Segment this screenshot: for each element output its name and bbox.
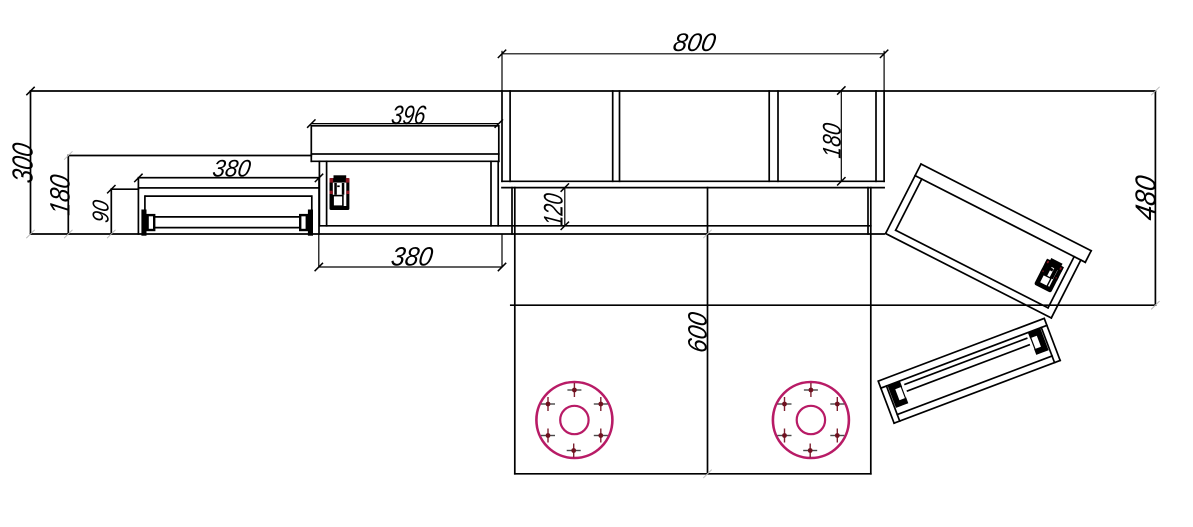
- svg-text:180: 180: [818, 121, 846, 160]
- svg-text:396: 396: [390, 101, 429, 131]
- svg-text:600: 600: [684, 310, 713, 354]
- svg-text:180: 180: [44, 172, 76, 217]
- svg-text:90: 90: [87, 198, 114, 224]
- svg-text:120: 120: [539, 192, 569, 228]
- svg-text:380: 380: [211, 155, 253, 182]
- svg-text:800: 800: [671, 29, 718, 57]
- svg-text:380: 380: [389, 243, 435, 272]
- svg-text:480: 480: [1129, 173, 1161, 223]
- svg-text:300: 300: [6, 141, 39, 185]
